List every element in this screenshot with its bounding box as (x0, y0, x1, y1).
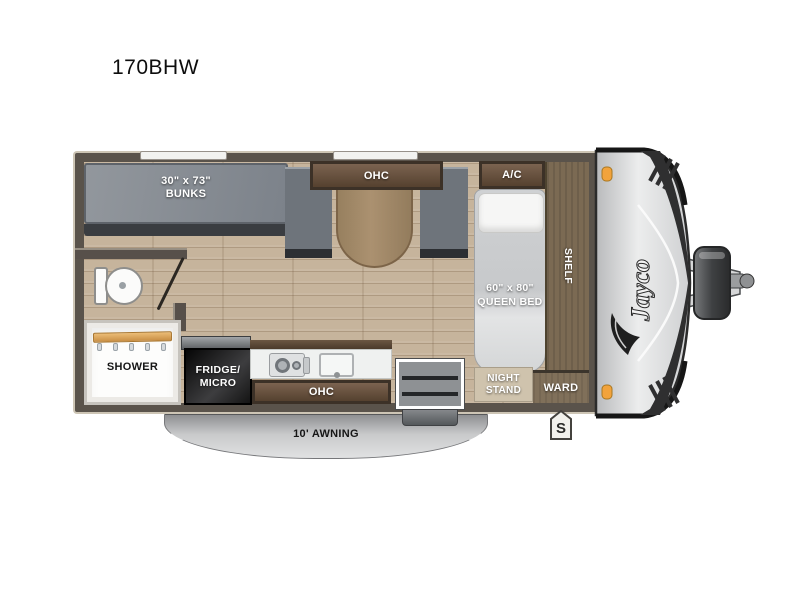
ward-label: WARD (544, 382, 579, 394)
curtain-hook (145, 343, 150, 351)
bunks-name: BUNKS (84, 188, 288, 201)
ac-label: A/C (502, 169, 522, 181)
queen-bed-label: 60" x 80" QUEEN BED (474, 281, 546, 309)
fridge-label: FRIDGE/ MICRO (196, 364, 241, 390)
stove-icon (269, 353, 305, 377)
bed-name: QUEEN BED (474, 295, 546, 309)
floorplan-canvas: 170BHW 10' AWNING 30" x 73" BUNKS OHC A/… (0, 0, 800, 600)
bunk-base (84, 224, 288, 236)
kitchen-counter (250, 349, 392, 379)
marker-letter: S (556, 420, 566, 437)
shelf-label: SHELF (562, 248, 574, 284)
kitchen-ohc-label: OHC (309, 386, 334, 398)
curtain-hook (113, 343, 118, 351)
front-cap: Jayco (588, 143, 770, 423)
hitch-ball-icon (740, 274, 754, 288)
shelf: SHELF (545, 162, 589, 370)
bed-size: 60" x 80" (474, 281, 546, 295)
entry-steps (396, 359, 464, 409)
curtain-hook (129, 343, 134, 351)
stove-panel (303, 357, 310, 374)
bath-wall (75, 248, 187, 259)
curbside-marker: S (550, 410, 572, 440)
window-dinette (333, 151, 418, 160)
night-stand: NIGHT STAND (474, 367, 533, 402)
dinette-overhead-cabinet: OHC (310, 161, 443, 190)
curtain-hook (97, 343, 102, 351)
toilet-flush-icon (119, 282, 126, 289)
bed-pillow (478, 193, 544, 233)
marker-light-icon (602, 385, 612, 399)
ac-unit: A/C (479, 161, 545, 189)
burner-icon (292, 361, 301, 370)
brand-logo: Jayco (626, 259, 655, 322)
entry-step-exterior (402, 409, 458, 426)
propane-cover-highlight (699, 252, 725, 259)
window-bunks (140, 151, 227, 160)
dinette-ohc-label: OHC (364, 170, 389, 182)
kitchen-overhead-cabinet: OHC (252, 380, 391, 404)
trailer-body: 30" x 73" BUNKS OHC A/C 60" x 80" QUEEN … (75, 153, 598, 412)
counter-backsplash (250, 340, 392, 349)
burner-icon (275, 358, 290, 373)
faucet-icon (334, 372, 340, 378)
shower-curtain-rod (93, 331, 172, 343)
shower-stall: SHOWER (84, 320, 181, 405)
curtain-hook (161, 343, 166, 351)
night-stand-label: NIGHT STAND (486, 373, 521, 397)
model-title: 170BHW (112, 56, 199, 80)
fridge-micro: FRIDGE/ MICRO (184, 348, 252, 405)
bunks-label: 30" x 73" BUNKS (84, 175, 288, 201)
marker-light-icon (602, 167, 612, 181)
bunks-size: 30" x 73" (84, 175, 288, 188)
shower-label: SHOWER (87, 361, 178, 373)
step-edge (402, 392, 458, 396)
wardrobe: WARD (533, 370, 589, 403)
step-edge (402, 376, 458, 380)
